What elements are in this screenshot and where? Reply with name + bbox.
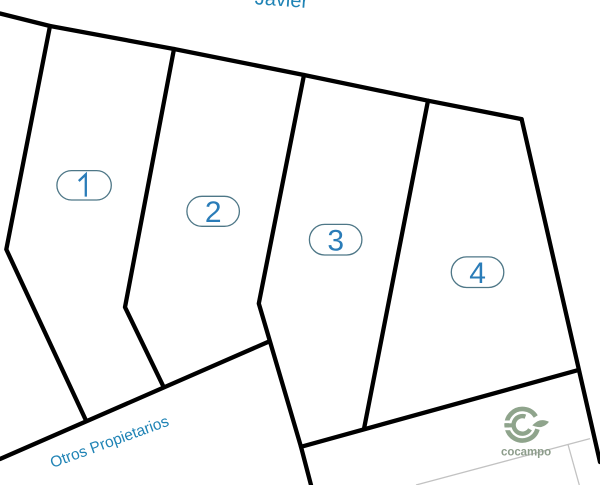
svg-text:cocampo: cocampo <box>501 446 551 458</box>
svg-text:Javier: Javier <box>254 0 309 13</box>
svg-text:Otros Propietarios: Otros Propietarios <box>48 413 171 472</box>
svg-text:4: 4 <box>469 257 486 290</box>
svg-text:2: 2 <box>205 196 222 229</box>
svg-text:3: 3 <box>327 225 344 258</box>
